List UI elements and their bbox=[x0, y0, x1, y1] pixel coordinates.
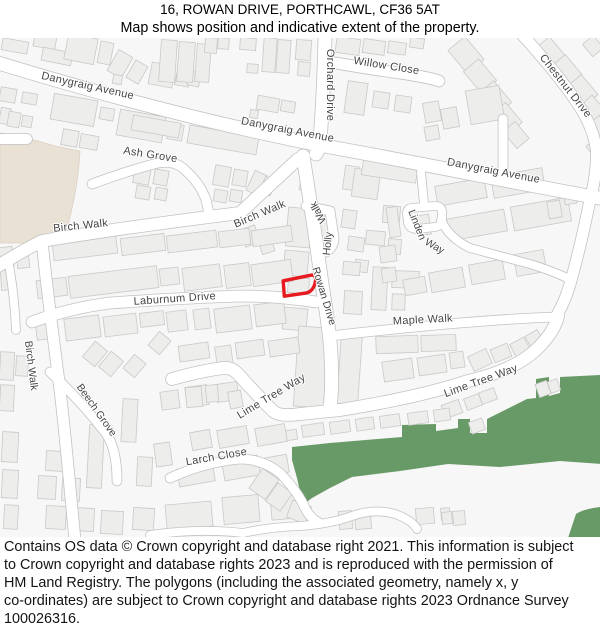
svg-text:Holly: Holly bbox=[321, 231, 335, 256]
svg-text:Orchard Drive: Orchard Drive bbox=[324, 49, 336, 121]
